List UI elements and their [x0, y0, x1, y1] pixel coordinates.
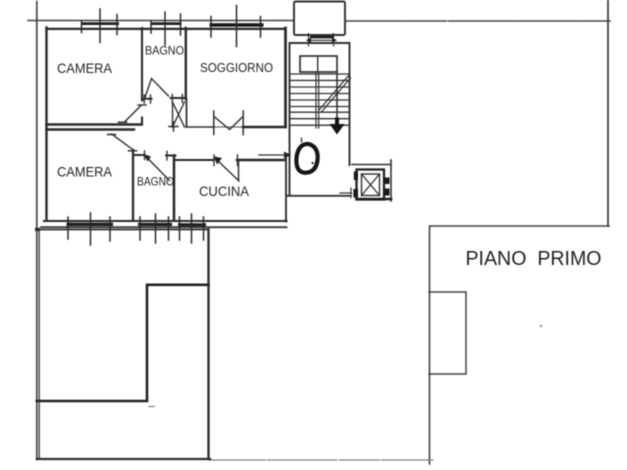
svg-text:PIANO PRIMO: PIANO PRIMO [466, 248, 602, 270]
svg-text:CAMERA: CAMERA [57, 61, 113, 76]
svg-text:CUCINA: CUCINA [199, 183, 250, 199]
svg-text:SOGGIORNO: SOGGIORNO [200, 60, 273, 75]
svg-text:BAGNO: BAGNO [145, 44, 184, 58]
svg-text:CAMERA: CAMERA [57, 165, 113, 180]
svg-text:BAGNO: BAGNO [137, 175, 174, 189]
